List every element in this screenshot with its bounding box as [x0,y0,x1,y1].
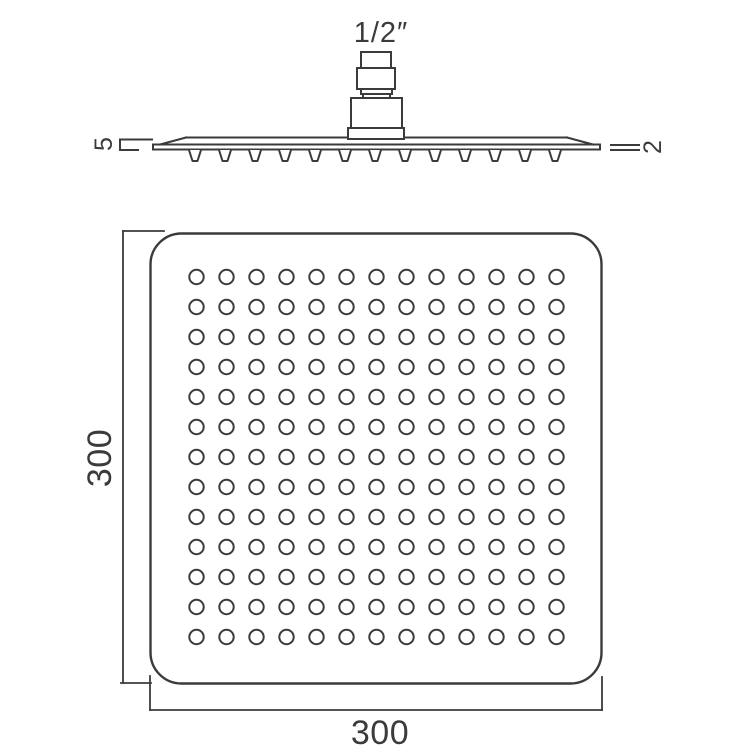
spray-hole [429,510,443,524]
spray-hole [429,450,443,464]
spray-hole [339,600,353,614]
spray-hole [429,300,443,314]
spray-hole [429,480,443,494]
spray-hole [489,600,503,614]
spray-hole [279,420,293,434]
spray-hole [309,540,323,554]
spray-hole [309,360,323,374]
spray-hole [459,570,473,584]
spray-hole [309,630,323,644]
spray-hole [549,600,563,614]
spray-hole [399,390,413,404]
spray-hole [279,480,293,494]
spray-hole [189,450,203,464]
nozzle-row [189,150,561,161]
spray-hole [309,300,323,314]
spray-hole [489,570,503,584]
spray-hole [399,630,413,644]
spray-hole [249,390,263,404]
nozzle [339,150,351,161]
spray-hole [549,540,563,554]
spray-hole [459,600,473,614]
nozzle [489,150,501,161]
spray-hole [549,570,563,584]
spray-hole [339,480,353,494]
nozzle [309,150,321,161]
spray-hole [249,570,263,584]
spray-hole [519,450,533,464]
connector-base-segment [348,128,404,139]
width-dimension [150,676,602,710]
left-thickness-label: 5 [90,137,118,151]
spray-hole [339,360,353,374]
spray-hole [219,270,233,284]
shower-head-technical-drawing: 1/2″ 5 2 300 300 [0,0,754,754]
spray-hole [549,450,563,464]
spray-hole [459,330,473,344]
nozzle [519,150,531,161]
spray-hole [399,540,413,554]
spray-hole [429,360,443,374]
spray-hole [549,270,563,284]
spray-hole [489,450,503,464]
spray-hole [399,270,413,284]
spray-hole [489,360,503,374]
spray-hole [399,420,413,434]
spray-hole [429,420,443,434]
spray-hole [219,300,233,314]
nozzle [369,150,381,161]
spray-hole [249,420,263,434]
spray-hole [309,270,323,284]
spray-hole [519,480,533,494]
spray-hole [369,390,383,404]
spray-hole [279,600,293,614]
spray-hole [369,600,383,614]
spray-hole [369,480,383,494]
spray-hole [519,330,533,344]
spray-hole [219,420,233,434]
thickness-dimension-left [120,140,152,151]
spray-hole [369,300,383,314]
spray-hole [519,270,533,284]
spray-hole [399,600,413,614]
spray-hole [279,300,293,314]
spray-hole [549,510,563,524]
spray-hole [309,420,323,434]
spray-hole [489,270,503,284]
connector-body-segment [351,98,402,128]
spray-hole [219,600,233,614]
connector-size-label: 1/2″ [354,17,409,49]
spray-hole [219,450,233,464]
spray-hole [489,330,503,344]
spray-hole [189,270,203,284]
nozzle [429,150,441,161]
height-dimension [121,231,164,683]
spray-hole [369,630,383,644]
spray-hole [369,270,383,284]
spray-hole [339,390,353,404]
spray-hole [369,450,383,464]
spray-hole [249,600,263,614]
spray-hole [219,360,233,374]
spray-hole [459,450,473,464]
spray-hole [189,510,203,524]
plate-right-bevel [567,138,593,145]
spray-hole [339,270,353,284]
height-dimension-label: 300 [81,429,119,487]
connector-nut-segment [357,68,395,89]
spray-hole [369,510,383,524]
spray-hole [309,390,323,404]
spray-hole [189,570,203,584]
side-profile-view: 1/2″ 5 2 [90,17,667,161]
spray-hole [519,300,533,314]
spray-hole [219,390,233,404]
spray-hole [339,630,353,644]
spray-hole [309,480,323,494]
spray-hole [309,600,323,614]
spray-hole [189,390,203,404]
technical-drawing-page: 1/2″ 5 2 300 300 [0,0,754,754]
spray-hole [189,480,203,494]
spray-hole [399,450,413,464]
spray-hole [519,600,533,614]
spray-hole [279,270,293,284]
spray-hole [399,360,413,374]
spray-hole [249,300,263,314]
spray-hole [369,540,383,554]
spray-hole [339,330,353,344]
spray-hole [249,330,263,344]
spray-hole [249,630,263,644]
spray-hole [549,390,563,404]
spray-hole [549,630,563,644]
spray-hole [429,270,443,284]
spray-hole [189,600,203,614]
spray-hole [459,270,473,284]
spray-hole [429,630,443,644]
spray-hole [309,450,323,464]
spray-hole [219,480,233,494]
spray-hole [459,510,473,524]
spray-hole [459,360,473,374]
spray-hole [369,420,383,434]
right-thickness-label: 2 [639,140,667,154]
spray-hole [369,360,383,374]
spray-hole [249,360,263,374]
spray-hole [489,540,503,554]
spray-hole [519,630,533,644]
nozzle [399,150,411,161]
spray-hole [429,600,443,614]
left-dimension-bracket [120,140,152,151]
spray-hole [189,540,203,554]
spray-hole [369,570,383,584]
spray-hole [429,390,443,404]
spray-hole [549,300,563,314]
spray-hole [519,540,533,554]
spray-hole [279,450,293,464]
spray-hole [219,630,233,644]
spray-hole [219,510,233,524]
spray-hole [249,480,263,494]
spray-hole [459,420,473,434]
spray-hole [279,540,293,554]
spray-hole [279,360,293,374]
spray-hole [429,540,443,554]
spray-hole [459,300,473,314]
connector-pipe-segment [361,52,391,68]
spray-hole [249,540,263,554]
spray-hole [339,570,353,584]
spray-hole [189,300,203,314]
spray-hole [399,510,413,524]
spray-hole [279,510,293,524]
face-view: 300 300 [81,231,602,752]
spray-hole [549,420,563,434]
nozzle [189,150,201,161]
spray-holes-grid [189,270,563,644]
nozzle [459,150,471,161]
spray-hole [339,450,353,464]
nozzle [279,150,291,161]
spray-hole [309,570,323,584]
spray-hole [369,330,383,344]
spray-hole [249,270,263,284]
spray-hole [489,420,503,434]
spray-hole [279,390,293,404]
spray-hole [249,450,263,464]
spray-hole [459,630,473,644]
connector-stack [348,52,404,139]
spray-hole [249,510,263,524]
spray-hole [429,570,443,584]
width-dimension-label: 300 [351,714,409,752]
spray-hole [519,360,533,374]
spray-hole [459,390,473,404]
spray-hole [189,420,203,434]
spray-hole [459,540,473,554]
spray-hole [339,420,353,434]
nozzle [249,150,261,161]
spray-hole [429,330,443,344]
spray-hole [489,510,503,524]
spray-hole [279,630,293,644]
spray-hole [489,630,503,644]
spray-hole [489,390,503,404]
spray-hole [279,570,293,584]
spray-hole [279,330,293,344]
nozzle [219,150,231,161]
thickness-dimension-right [611,145,639,150]
spray-hole [399,330,413,344]
spray-hole [399,300,413,314]
spray-hole [219,570,233,584]
spray-hole [399,480,413,494]
spray-hole [219,540,233,554]
spray-hole [339,510,353,524]
spray-hole [399,570,413,584]
spray-hole [189,330,203,344]
spray-hole [519,510,533,524]
spray-hole [519,390,533,404]
spray-hole [339,540,353,554]
spray-hole [459,480,473,494]
spray-hole [339,300,353,314]
spray-hole [549,360,563,374]
spray-hole [549,330,563,344]
nozzle [549,150,561,161]
spray-hole [309,330,323,344]
spray-hole [189,630,203,644]
spray-hole [219,330,233,344]
spray-hole [519,420,533,434]
spray-hole [519,570,533,584]
spray-hole [489,300,503,314]
plate-left-bevel [160,138,186,145]
spray-hole [549,480,563,494]
spray-hole [309,510,323,524]
spray-hole [189,360,203,374]
spray-hole [489,480,503,494]
